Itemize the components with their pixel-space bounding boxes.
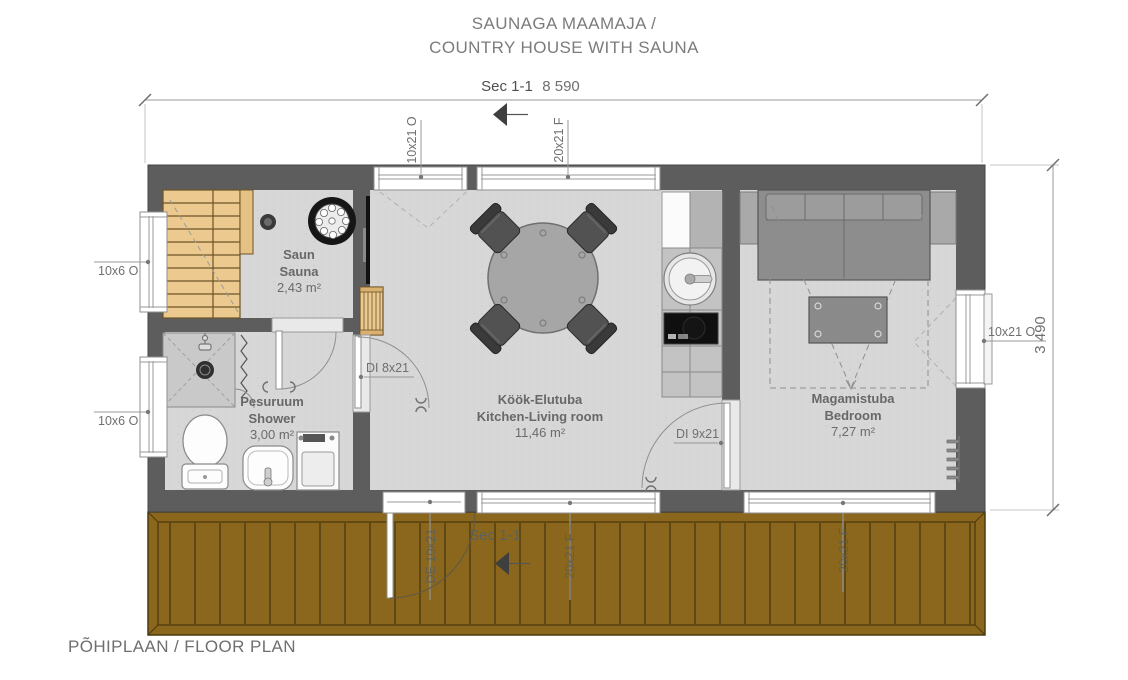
label-bottom-bedroom-window: 20x21 F	[837, 516, 851, 584]
drawing-title: PÕHIPLAAN / FLOOR PLAN	[68, 637, 296, 657]
room-label-shower: Pesuruum Shower 3,00 m²	[212, 394, 332, 444]
floor-plan-drawing: SAUNAGA MAAMAJA / COUNTRY HOUSE WITH SAU…	[0, 0, 1128, 680]
label-left-sauna-window: 10x6 O	[98, 264, 138, 278]
title-line-2: COUNTRY HOUSE WITH SAUNA	[0, 36, 1128, 60]
left-window-shower	[140, 357, 167, 457]
section-marker-top	[493, 103, 528, 126]
bottom-window-living	[477, 492, 660, 513]
room-label-bedroom: Magamistuba Bedroom 7,27 m²	[791, 391, 915, 441]
room-label-sauna: Saun Sauna 2,43 m²	[239, 247, 359, 297]
sink	[243, 446, 293, 490]
cooktop	[664, 313, 718, 344]
right-window-bedroom	[956, 290, 992, 388]
label-door-shower-living: DI 8x21	[366, 361, 409, 375]
section-arrow-icon	[493, 103, 507, 126]
bottom-window-bedroom	[744, 492, 935, 513]
shower-drain	[196, 361, 214, 379]
kitchen-sink	[664, 253, 716, 305]
sauna-bench	[163, 190, 240, 318]
sofa-bed	[758, 190, 930, 280]
overall-width-dimension: 8 590	[526, 78, 596, 95]
room-label-kitchen-living: Köök-Elutuba Kitchen-Living room 11,46 m…	[455, 392, 625, 442]
sauna-bench-extension	[240, 190, 253, 254]
ottoman-table	[809, 297, 887, 343]
tv	[366, 196, 370, 284]
label-right-bedroom-window: 10x21 O	[988, 325, 1035, 339]
label-exterior-door: DE 10x21	[424, 520, 438, 592]
label-door-living-bedroom: DI 9x21	[676, 427, 719, 441]
sauna-heater	[308, 197, 356, 245]
bottom-exterior-door	[383, 492, 465, 513]
wardrobe-right	[928, 192, 956, 244]
title-line-1: SAUNAGA MAAMAJA /	[0, 12, 1128, 36]
fridge	[662, 192, 690, 248]
label-top-window-left: 10x21 O	[405, 106, 419, 174]
section-label-bottom: Sec 1-1	[462, 527, 528, 544]
label-bottom-living-window: 20x21 F	[563, 522, 577, 590]
kitchen-counter	[662, 192, 722, 397]
label-top-window-right: 20x21 F	[552, 106, 566, 174]
label-left-shower-window: 10x6 O	[98, 414, 138, 428]
wood-bench	[360, 287, 383, 335]
